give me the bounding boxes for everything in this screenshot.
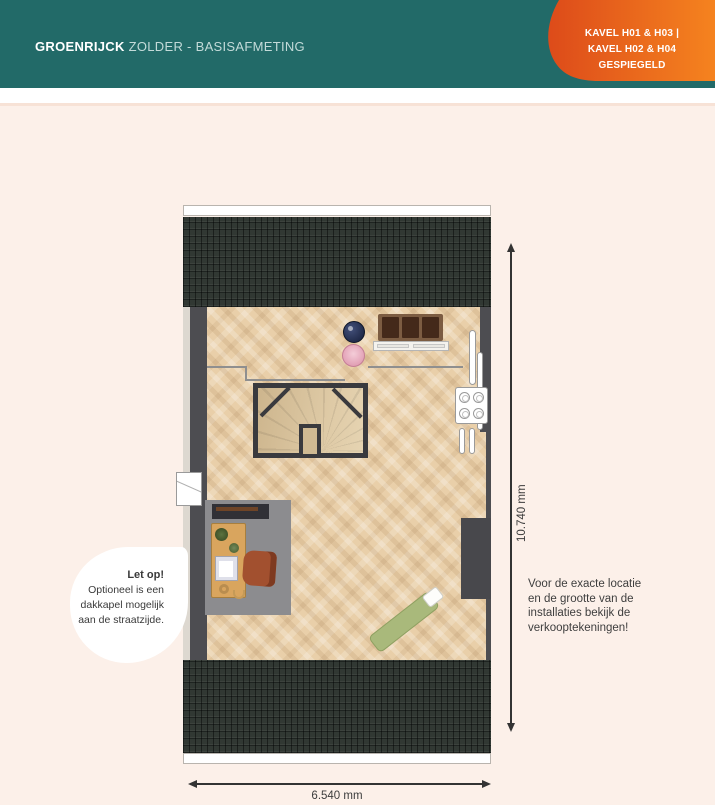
unit-knob <box>459 392 470 403</box>
dimension-width-label: 6.540 mm <box>183 790 491 802</box>
plant <box>229 543 239 553</box>
dimension-line-height <box>510 249 512 725</box>
letop-line: Optioneel is een <box>78 583 164 598</box>
desk-trinket <box>219 584 229 594</box>
header-band: GROENRIJCK ZOLDER - BASISAFMETING KAVEL … <box>0 0 715 88</box>
left-wall-window <box>176 472 202 506</box>
cabinet-panel <box>382 317 399 338</box>
roof-plane-bottom <box>183 660 491 753</box>
roof-plane-top <box>183 217 491 307</box>
sideboard-shelf <box>373 341 449 351</box>
chaise-longue <box>366 586 450 652</box>
stair-well-notch <box>299 424 321 454</box>
roof-ridge-bottom <box>183 753 491 764</box>
dimension-arrow-right <box>482 780 491 788</box>
brochure-page: GROENRIJCK ZOLDER - BASISAFMETING KAVEL … <box>0 0 715 805</box>
laptop <box>215 556 238 581</box>
installation-unit <box>455 387 488 424</box>
shelf-segment <box>413 344 445 348</box>
letop-line: dakkapel mogelijk <box>78 598 164 613</box>
letop-line: aan de straatzijde. <box>78 613 164 628</box>
kavel-badge: KAVEL H01 & H03 | KAVEL H02 & H04 GESPIE… <box>545 0 715 88</box>
duct-pipe <box>469 330 476 385</box>
unit-knob <box>459 408 470 419</box>
dimension-arrow-left <box>188 780 197 788</box>
desk-shelf <box>212 504 269 519</box>
shelf-segment <box>377 344 409 348</box>
cabinet-panel <box>422 317 439 338</box>
duct-pipe <box>459 428 465 454</box>
cabinet-top <box>378 314 443 341</box>
page-title-subject: ZOLDER - BASISAFMETING <box>129 39 305 54</box>
dimension-arrow-up <box>507 243 515 252</box>
plant <box>215 528 228 541</box>
installations-note: Voor de exacte locatie en de grootte van… <box>528 577 653 635</box>
page-title-brand: GROENRIJCK <box>35 39 125 54</box>
kavel-badge-line2: KAVEL H02 & H04 GESPIEGELD <box>553 42 711 74</box>
letop-title: Let op! <box>78 568 164 583</box>
swivel-chair <box>343 321 365 343</box>
note-line: verkooptekeningen! <box>528 621 653 636</box>
note-line: en de grootte van de <box>528 592 653 607</box>
cabinet-panel <box>402 317 419 338</box>
letop-callout-text: Let op! Optioneel is een dakkapel mogeli… <box>78 568 164 628</box>
unit-knob <box>473 392 484 403</box>
stair-chamfer-left <box>260 386 291 417</box>
note-line: Voor de exacte locatie <box>528 577 653 592</box>
duct-pipe <box>469 428 475 454</box>
kneewall-line-c <box>245 379 345 381</box>
dimension-arrow-down <box>507 723 515 732</box>
kavel-badge-line1: KAVEL H01 & H03 | <box>553 26 711 42</box>
desk-chair <box>242 550 277 587</box>
roof-ridge-top <box>183 205 491 216</box>
staircase <box>253 383 368 458</box>
unit-knob <box>473 408 484 419</box>
wall-right-block <box>461 518 491 599</box>
note-line: installaties bekijk de <box>528 606 653 621</box>
pink-pouf <box>342 344 365 367</box>
kneewall-line-d <box>368 366 463 368</box>
dimension-line-width <box>194 783 485 785</box>
stair-chamfer-right <box>332 388 363 419</box>
kavel-badge-label: KAVEL H01 & H03 | KAVEL H02 & H04 GESPIE… <box>553 26 711 74</box>
page-title: GROENRIJCK ZOLDER - BASISAFMETING <box>35 39 305 54</box>
kneewall-line-a <box>207 366 247 368</box>
dimension-height-label: 10.740 mm <box>516 448 528 542</box>
